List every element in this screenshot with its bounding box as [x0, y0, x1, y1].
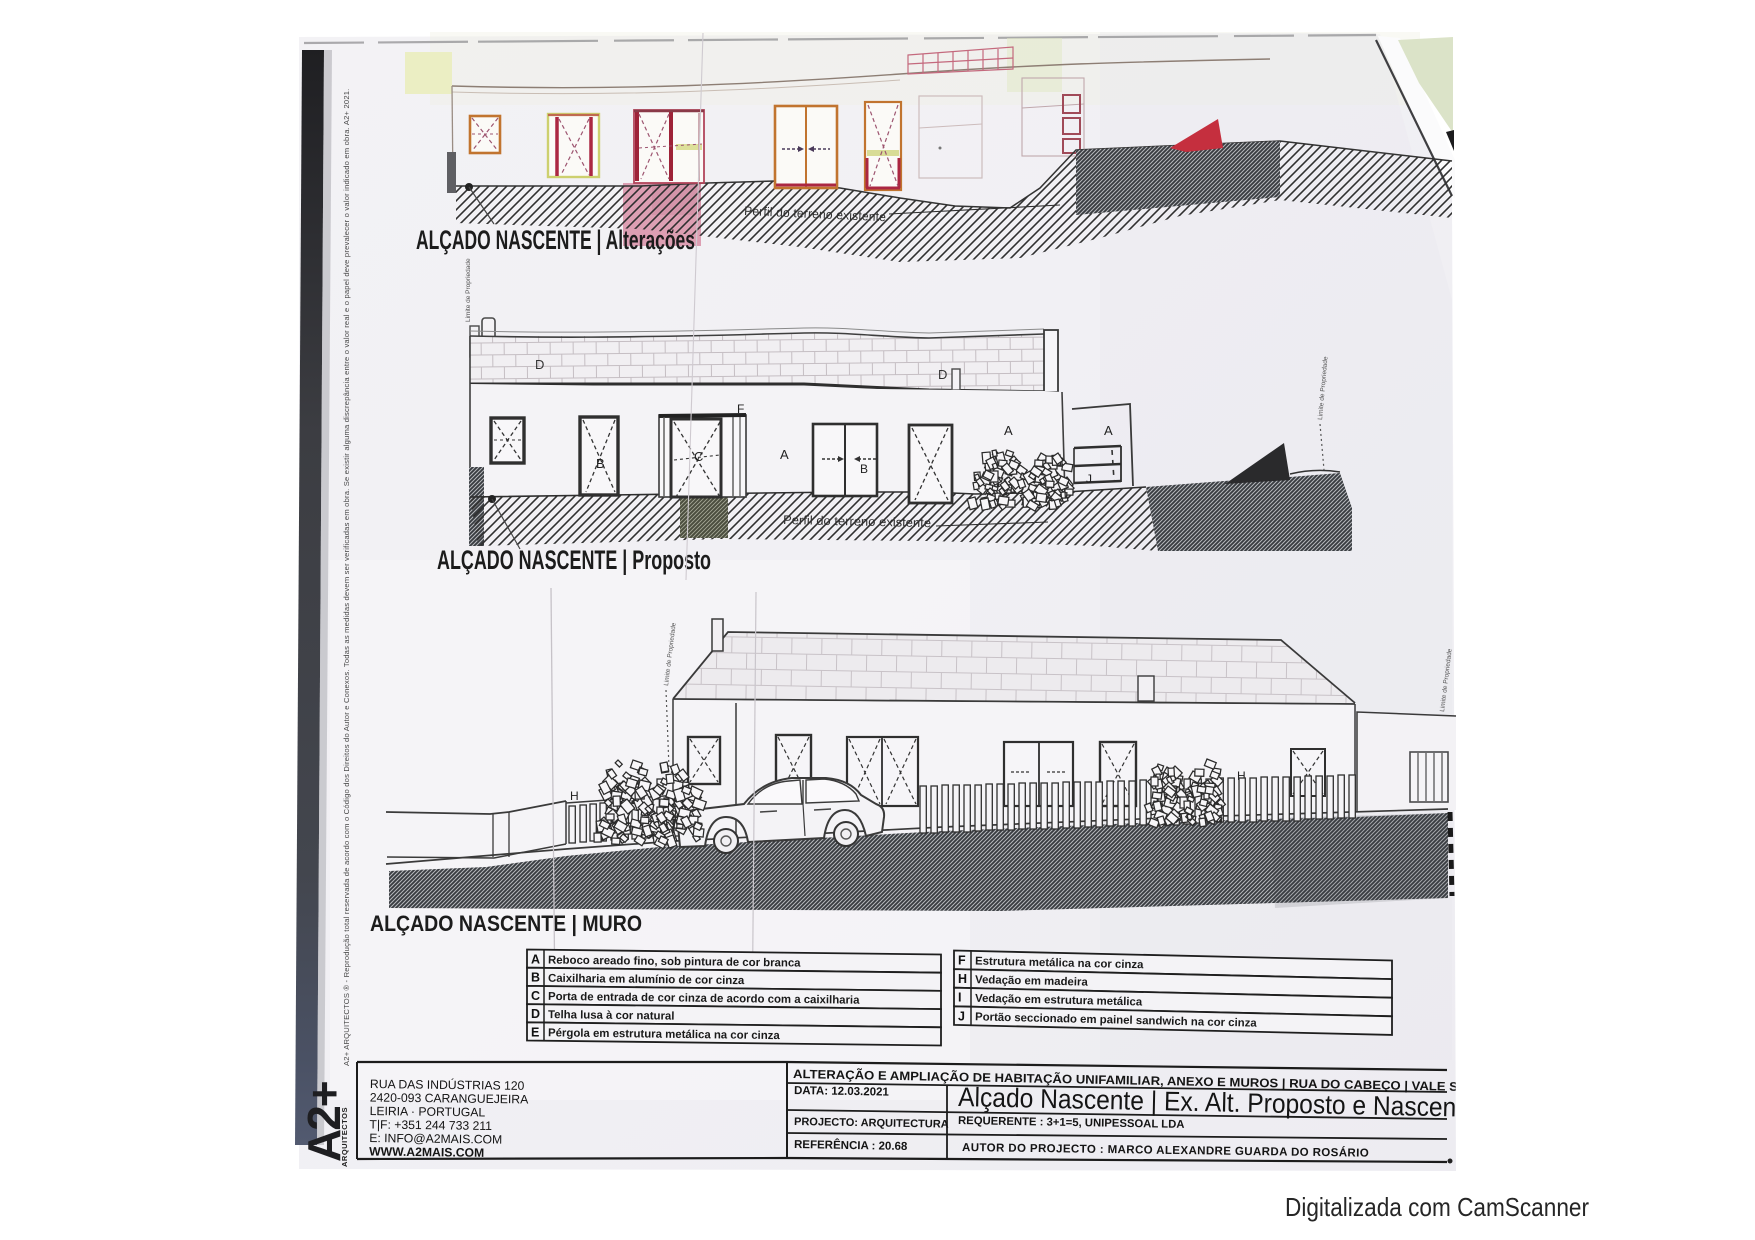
- svg-text:A: A: [1004, 423, 1013, 438]
- svg-text:A: A: [780, 447, 789, 462]
- svg-text:ARQUITECTOS: ARQUITECTOS: [340, 1107, 349, 1167]
- svg-text:D: D: [535, 357, 544, 372]
- svg-text:A2+ ARQUITECTOS ® - Reprodução: A2+ ARQUITECTOS ® - Reprodução total res…: [342, 89, 351, 1066]
- svg-text:REFERÊNCIA : 20.68: REFERÊNCIA : 20.68: [794, 1138, 908, 1153]
- svg-text:ALÇADO NASCENTE | MURO: ALÇADO NASCENTE | MURO: [370, 911, 642, 936]
- svg-text:F: F: [958, 954, 966, 968]
- svg-text:ALÇADO NASCENTE | Proposto: ALÇADO NASCENTE | Proposto: [437, 545, 711, 575]
- svg-text:A: A: [1104, 423, 1113, 438]
- svg-text:B: B: [596, 456, 605, 471]
- svg-text:Caixilharia em alumínio de cor: Caixilharia em alumínio de cor cinza: [548, 973, 745, 987]
- svg-text:Limite de Propriedade: Limite de Propriedade: [465, 258, 472, 322]
- svg-text:F: F: [737, 402, 744, 416]
- svg-text:Vedação em madeira: Vedação em madeira: [975, 974, 1089, 989]
- svg-text:WWW.A2MAIS.COM: WWW.A2MAIS.COM: [369, 1144, 484, 1159]
- svg-text:I: I: [958, 991, 961, 1005]
- svg-text:Telha lusa à cor natural: Telha lusa à cor natural: [548, 1009, 675, 1023]
- svg-text:D: D: [938, 367, 947, 382]
- svg-text:A: A: [531, 953, 540, 967]
- svg-text:H: H: [570, 789, 579, 803]
- svg-text:C: C: [694, 449, 703, 464]
- svg-text:E: E: [531, 1025, 539, 1039]
- svg-text:D: D: [531, 1007, 540, 1021]
- svg-text:J: J: [1086, 472, 1092, 486]
- svg-text:ALÇADO NASCENTE | Alterações: ALÇADO NASCENTE | Alterações: [416, 225, 695, 255]
- svg-text:C: C: [531, 989, 540, 1003]
- svg-text:H: H: [958, 972, 967, 986]
- svg-text:DATA: 12.03.2021: DATA: 12.03.2021: [794, 1085, 890, 1099]
- svg-text:Digitalizada com CamScanner: Digitalizada com CamScanner: [1285, 1192, 1589, 1222]
- svg-text:B: B: [531, 971, 540, 985]
- svg-text:B: B: [860, 462, 868, 476]
- svg-text:J: J: [958, 1009, 965, 1023]
